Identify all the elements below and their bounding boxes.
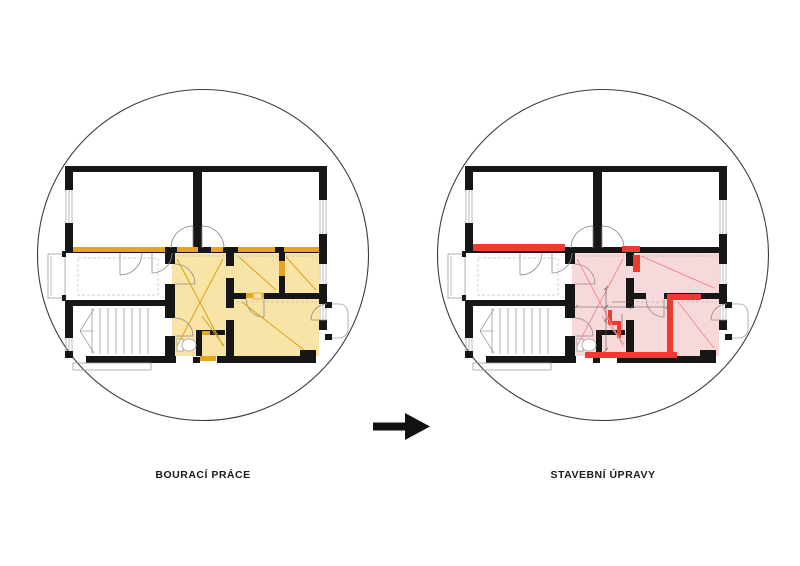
floor-plan-construction bbox=[436, 88, 770, 422]
right-arrow-icon bbox=[372, 413, 430, 440]
demolition-label: BOURACÍ PRÁCE bbox=[36, 469, 370, 481]
floor-plan-demolition bbox=[36, 88, 370, 422]
construction-label: STAVEBNÍ ÚPRAVY bbox=[436, 469, 770, 481]
construction-plan-panel bbox=[436, 88, 770, 422]
before-after-plan-diagram: BOURACÍ PRÁCE STAVEBNÍ ÚPRAVY bbox=[0, 0, 800, 566]
demolition-plan-panel bbox=[36, 88, 370, 422]
